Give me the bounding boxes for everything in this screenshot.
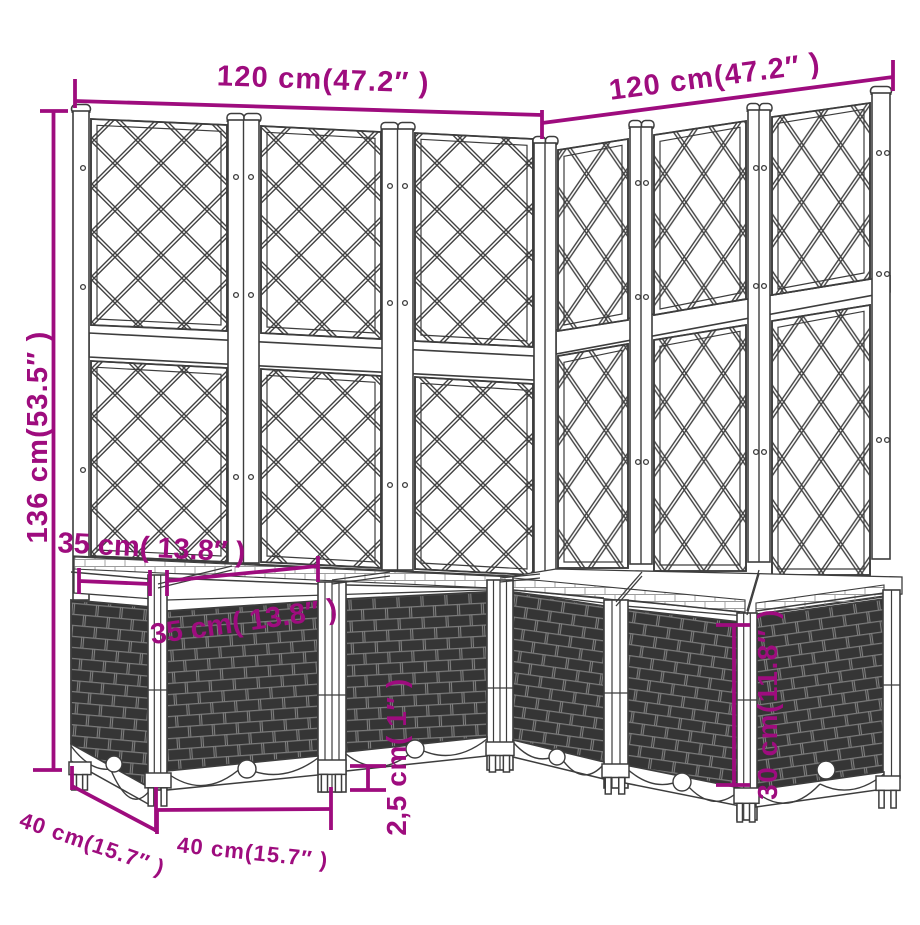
svg-text:30 cm(11.8″ ): 30 cm(11.8″ ): [752, 608, 783, 800]
svg-text:136 cm(53.5″ ): 136 cm(53.5″ ): [22, 331, 54, 544]
svg-text:2,5 cm( 1″ ): 2,5 cm( 1″ ): [381, 678, 412, 836]
